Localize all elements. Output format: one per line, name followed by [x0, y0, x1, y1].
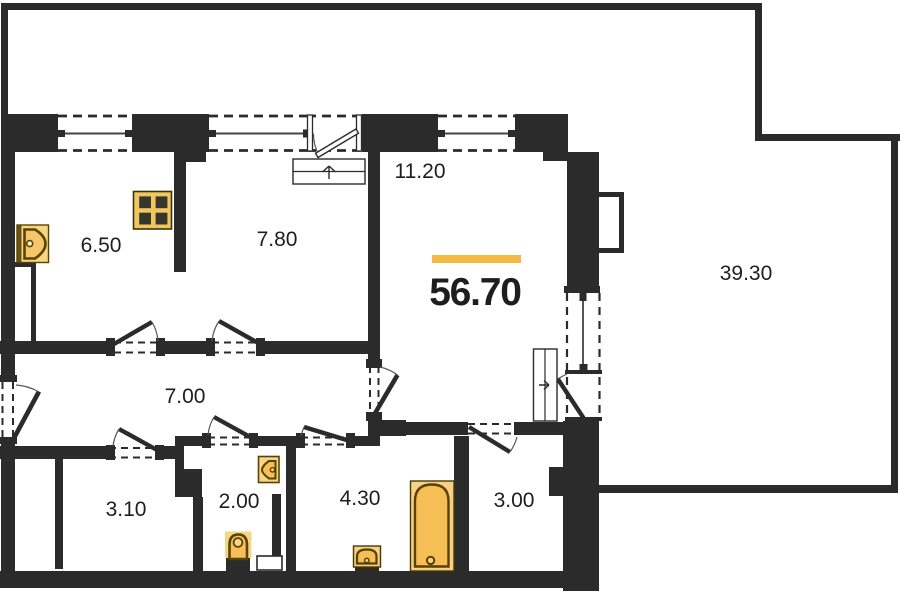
- svg-text:39.30: 39.30: [720, 262, 773, 285]
- svg-text:56.70: 56.70: [429, 271, 521, 314]
- svg-text:7.80: 7.80: [257, 228, 298, 251]
- svg-text:2.00: 2.00: [219, 490, 260, 513]
- svg-text:7.00: 7.00: [165, 385, 206, 408]
- svg-text:3.10: 3.10: [106, 498, 147, 521]
- svg-text:6.50: 6.50: [81, 234, 122, 257]
- svg-text:11.20: 11.20: [395, 160, 446, 183]
- svg-text:3.00: 3.00: [494, 489, 535, 512]
- svg-text:4.30: 4.30: [340, 487, 381, 510]
